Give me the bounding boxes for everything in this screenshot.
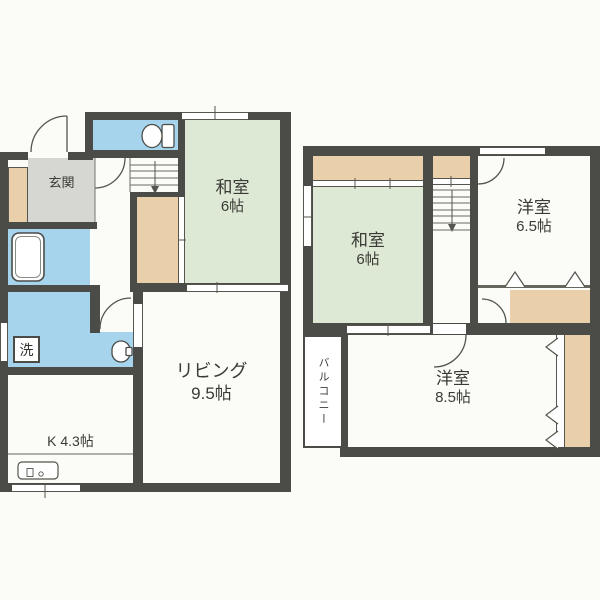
room-size: 9.5帖 <box>191 383 232 404</box>
closet-fusuma <box>178 197 185 283</box>
room-bath <box>8 229 90 285</box>
room-size: 6.5帖 <box>516 218 552 237</box>
wall <box>0 152 8 492</box>
stairs-2f <box>433 190 470 232</box>
wall <box>590 146 600 457</box>
room-name: リビング <box>176 360 248 383</box>
wall-divider <box>478 285 590 288</box>
washitsu-2f-label: 和室 6帖 <box>313 223 423 277</box>
window <box>480 147 545 155</box>
room-name: 和室 <box>351 230 385 251</box>
shoe-cabinet <box>8 167 28 223</box>
yoshitsu-65-label: 洋室 6.5帖 <box>478 190 590 244</box>
window <box>0 323 8 361</box>
wall <box>130 192 178 197</box>
storage-door-arc <box>482 299 506 323</box>
room-size: 6帖 <box>356 251 379 270</box>
closet-fusuma <box>433 178 470 185</box>
sliding-door <box>347 325 430 334</box>
closet-2f-stair <box>433 156 470 178</box>
closet-1f <box>137 197 178 283</box>
wall <box>340 447 600 457</box>
floor-plan: バルコニー 玄関 和室 6帖 リビング 9.5帖 K 4.3帖 洗 和室 6帖 … <box>0 0 600 600</box>
wall <box>423 156 433 323</box>
yoshitsu-85-label: 洋室 8.5帖 <box>348 360 558 416</box>
closet-2f-right <box>565 335 590 447</box>
wall <box>133 292 143 304</box>
doorway-opening <box>433 324 466 334</box>
doorway-opening <box>133 304 143 347</box>
window <box>303 186 312 246</box>
room-name: 和室 <box>216 177 250 198</box>
wall <box>88 150 185 158</box>
room-washroom <box>8 292 90 332</box>
wall <box>178 112 185 200</box>
window <box>12 484 80 492</box>
wall <box>0 222 97 229</box>
stairs-1f <box>130 158 178 194</box>
laundry-pan: 洗 <box>13 336 40 363</box>
living-label: リビング 9.5帖 <box>143 352 280 412</box>
wall <box>280 112 291 492</box>
closet-2f-top <box>313 156 423 180</box>
room-size: 6帖 <box>221 198 244 217</box>
wall <box>470 156 478 335</box>
wall <box>133 347 143 483</box>
room-name: 洋室 <box>517 197 551 218</box>
kitchen-sink-icon <box>8 454 133 479</box>
room-toilet-1f <box>93 120 178 150</box>
washroom-door-arc <box>100 298 131 329</box>
closet-fusuma <box>313 180 423 187</box>
balcony-label: バルコニー <box>303 340 343 443</box>
laundry-label: 洗 <box>20 340 34 360</box>
window <box>182 112 248 120</box>
washitsu-1f-label: 和室 6帖 <box>185 170 280 224</box>
wall <box>0 367 143 375</box>
yoshitsu-65-door-arc <box>478 158 504 184</box>
wall <box>130 197 137 292</box>
wall <box>90 292 100 333</box>
hall-door-arc <box>95 158 125 188</box>
wall <box>0 285 100 292</box>
wall <box>303 146 600 156</box>
storage-2f <box>510 290 590 323</box>
kitchen-label: K 4.3帖 <box>8 432 133 452</box>
room-name: 洋室 <box>436 368 470 389</box>
entrance-door-arc <box>31 116 67 152</box>
stairs-down-arrow-icon <box>448 224 456 232</box>
sliding-door <box>187 284 288 292</box>
room-size: 8.5帖 <box>435 389 471 408</box>
genkan-label: 玄関 <box>28 172 95 194</box>
